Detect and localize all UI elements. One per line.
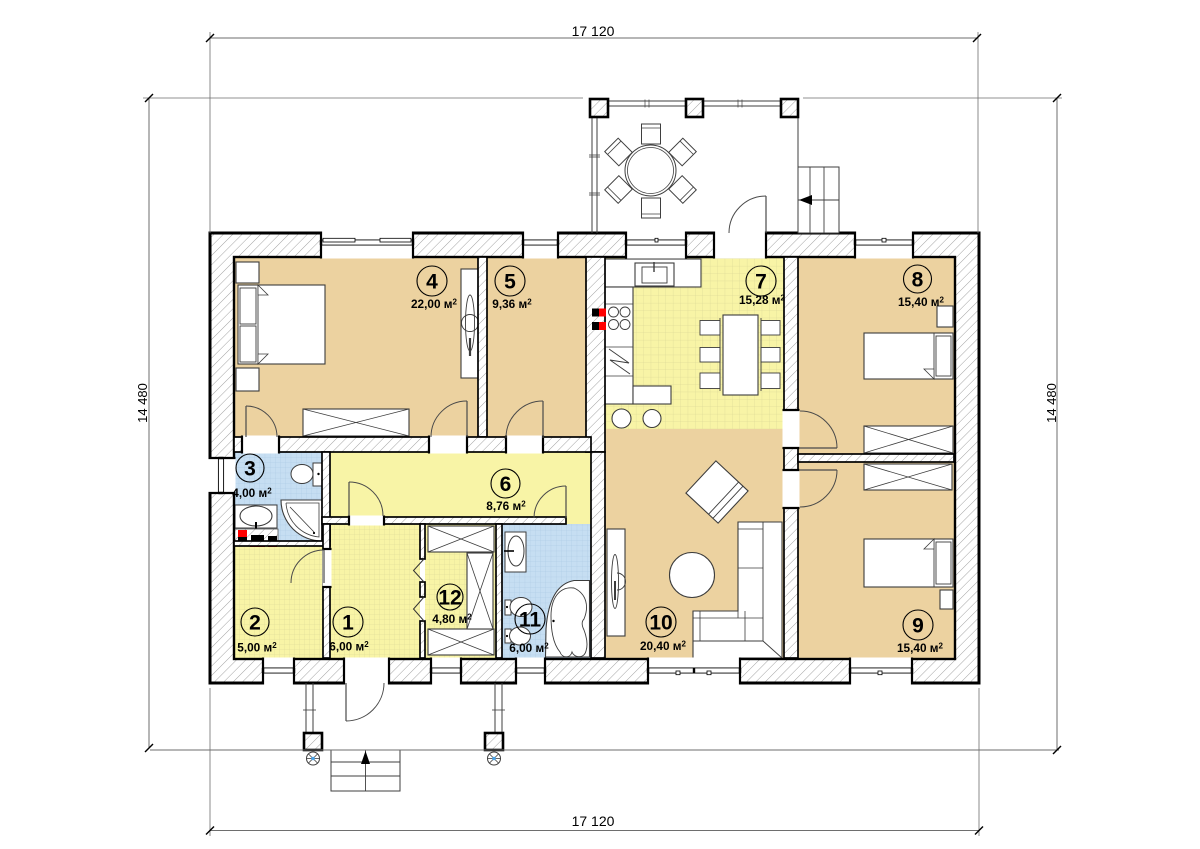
svg-text:2: 2 — [249, 612, 261, 635]
svg-text:14 480: 14 480 — [1044, 383, 1059, 423]
svg-text:15,40 м2: 15,40 м2 — [898, 295, 945, 309]
svg-text:6: 6 — [500, 473, 512, 496]
svg-text:14 480: 14 480 — [135, 383, 150, 423]
svg-text:7: 7 — [755, 271, 767, 294]
svg-text:17 120: 17 120 — [572, 23, 615, 39]
svg-text:3: 3 — [244, 458, 256, 481]
svg-text:5,00 м2: 5,00 м2 — [237, 641, 277, 655]
svg-text:17 120: 17 120 — [572, 813, 615, 829]
svg-text:15,28 м2: 15,28 м2 — [739, 293, 786, 307]
svg-text:9: 9 — [912, 615, 924, 638]
svg-text:4,00 м2: 4,00 м2 — [232, 486, 272, 500]
svg-text:8: 8 — [912, 269, 924, 292]
svg-text:20,40 м2: 20,40 м2 — [640, 639, 687, 653]
svg-text:9,36 м2: 9,36 м2 — [492, 297, 532, 311]
svg-text:11: 11 — [519, 609, 542, 632]
svg-text:22,00 м2: 22,00 м2 — [411, 297, 458, 311]
svg-text:12: 12 — [438, 587, 461, 610]
svg-text:6,00 м2: 6,00 м2 — [509, 641, 549, 655]
svg-text:10: 10 — [649, 612, 672, 635]
svg-text:5: 5 — [504, 271, 516, 294]
svg-text:6,00 м2: 6,00 м2 — [329, 640, 369, 654]
svg-text:8,76 м2: 8,76 м2 — [486, 499, 526, 513]
svg-text:4: 4 — [426, 271, 438, 294]
svg-text:4,80 м2: 4,80 м2 — [432, 612, 472, 626]
svg-text:1: 1 — [342, 612, 354, 635]
svg-text:15,40 м2: 15,40 м2 — [897, 641, 944, 655]
